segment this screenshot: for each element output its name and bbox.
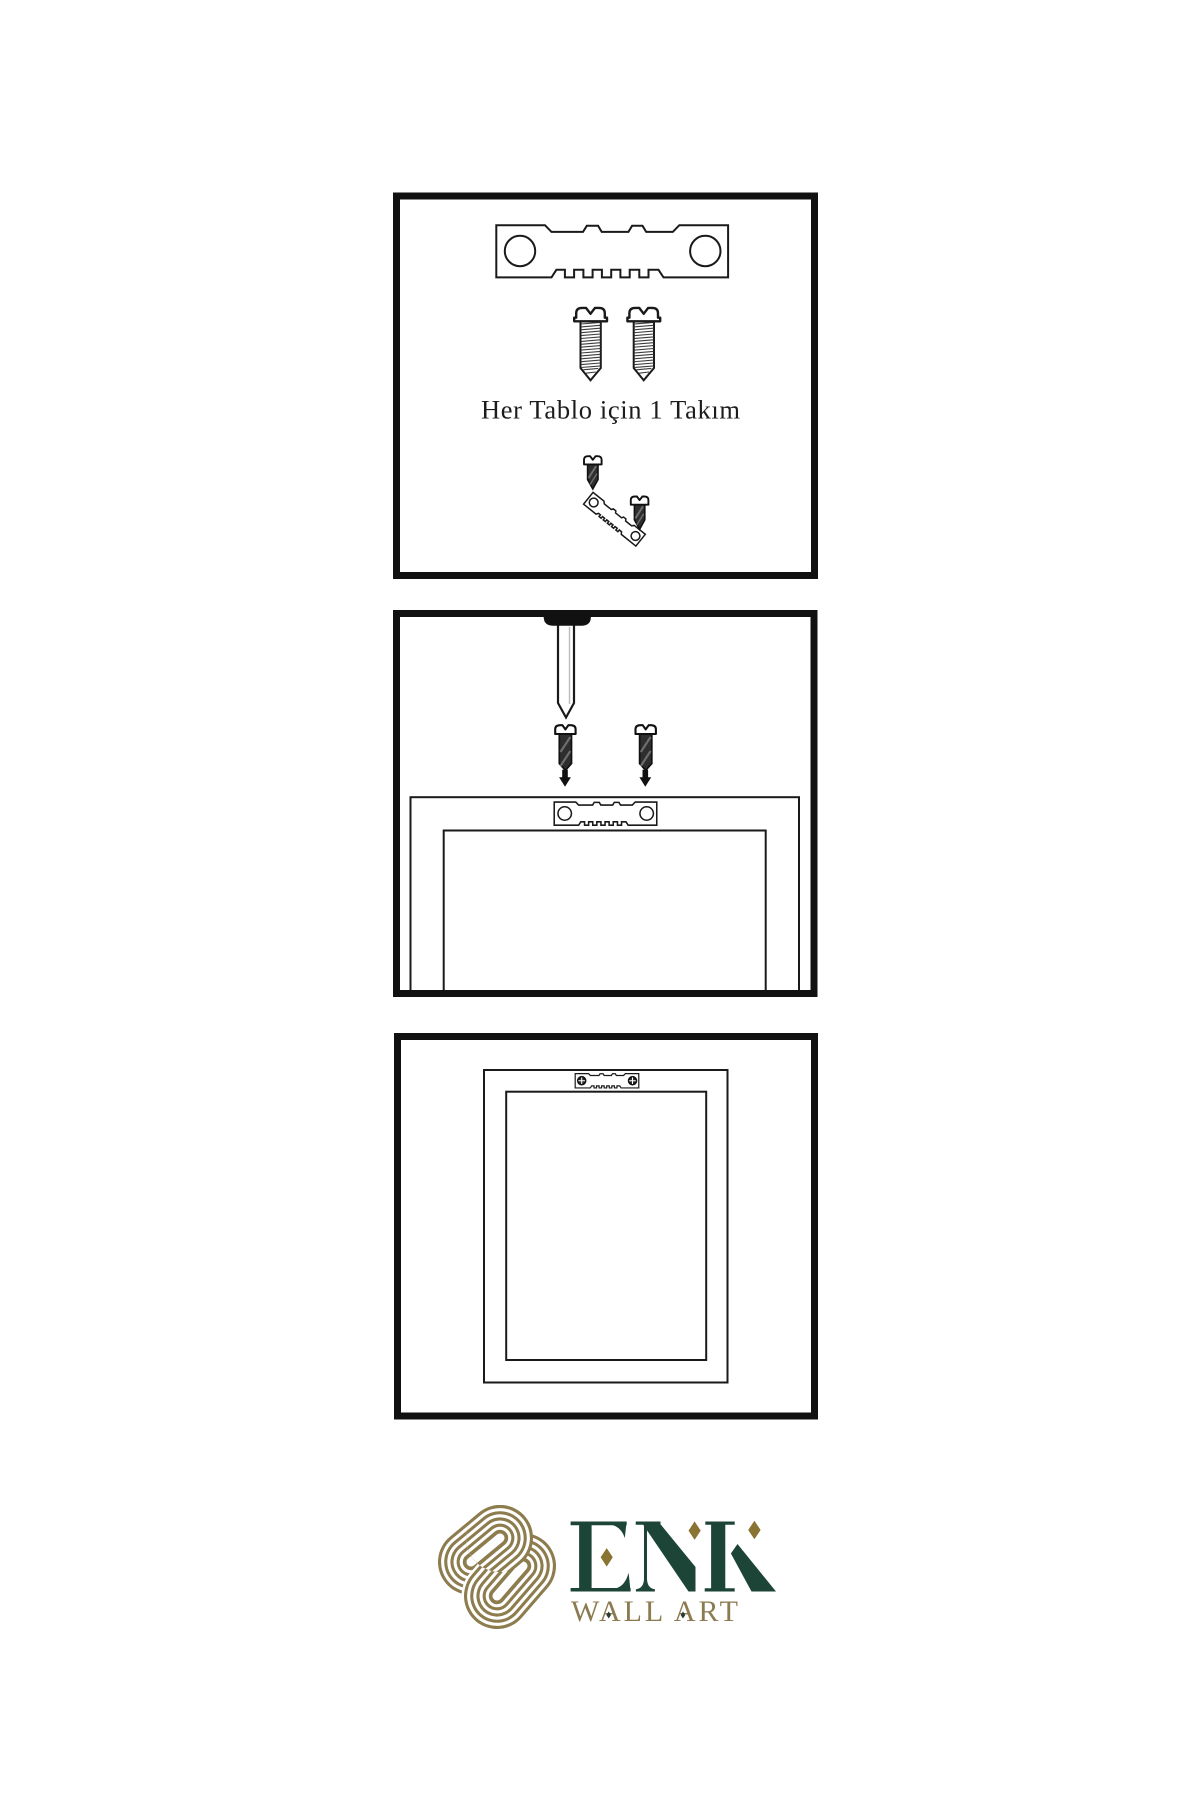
svg-text:Her Tablo için 1 Takım: Her Tablo için 1 Takım <box>481 395 740 425</box>
svg-text:WALL ART: WALL ART <box>571 1595 738 1628</box>
